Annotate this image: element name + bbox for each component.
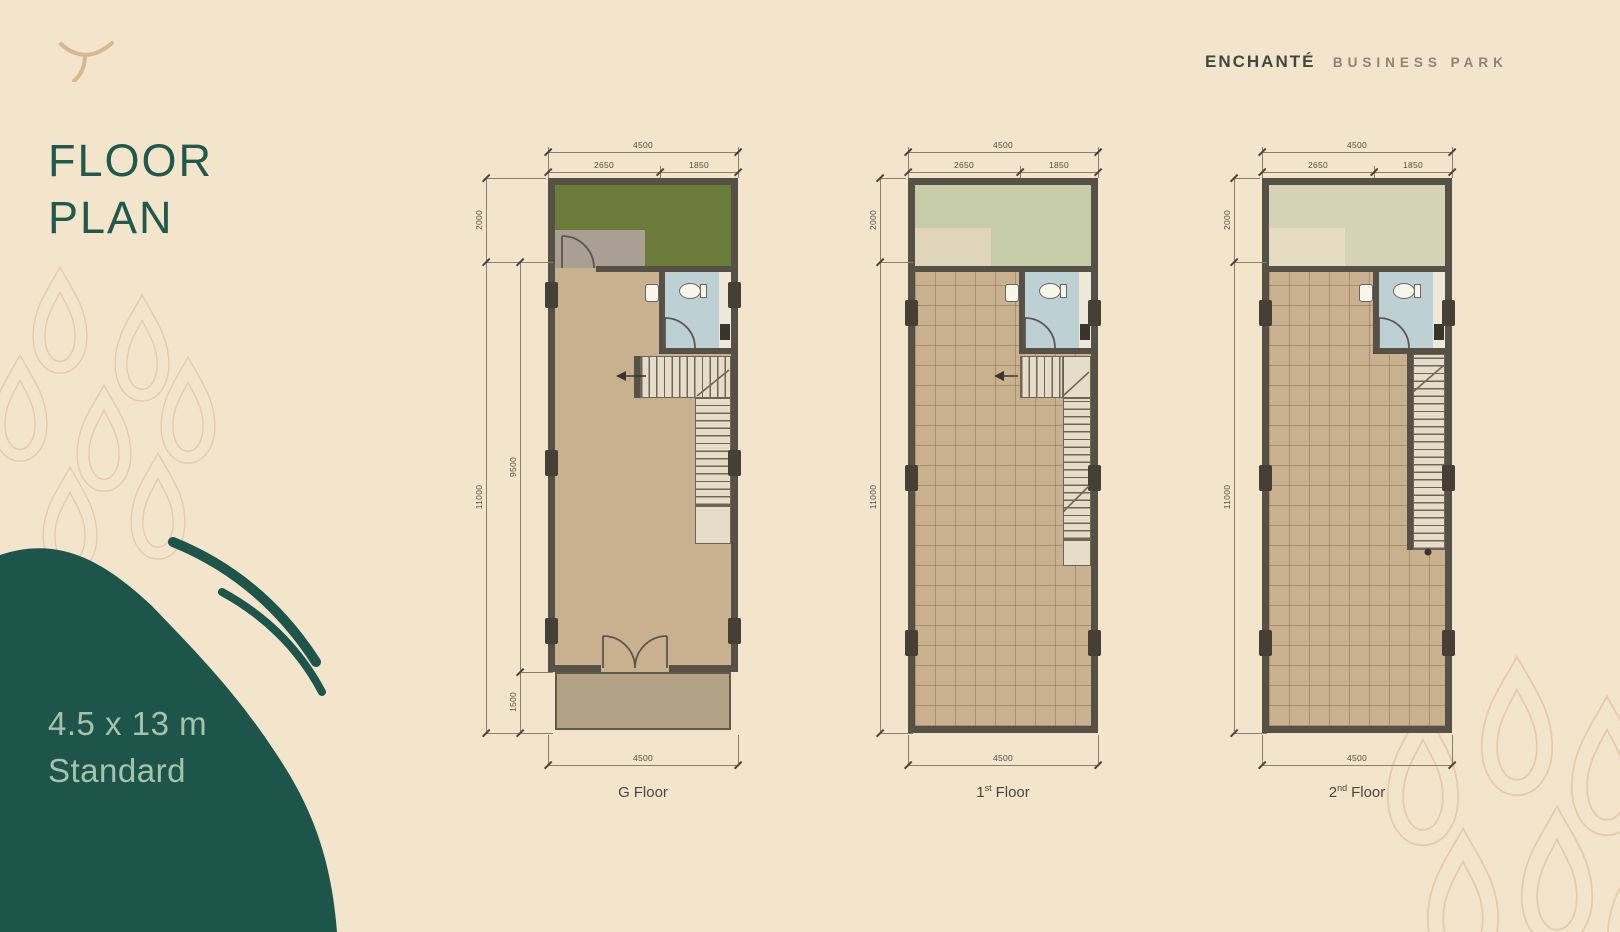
toilet-fixture	[679, 283, 701, 299]
sink-fixture	[1005, 284, 1019, 302]
dim-label: 11000	[1222, 485, 1232, 510]
dim-ext	[486, 178, 546, 179]
dim-line	[548, 172, 738, 173]
first-floor-stair-flight	[1020, 356, 1063, 398]
dim-label: 2000	[474, 210, 484, 230]
dim-label: 1850	[1049, 160, 1069, 170]
g-floor-entry-opening	[601, 663, 669, 672]
g-floor-stair-flight	[640, 356, 731, 398]
column	[905, 465, 918, 491]
plan-label-g-floor: GFloor	[583, 783, 703, 801]
bird-swoosh-icon	[58, 36, 116, 82]
dim-ext	[520, 672, 553, 673]
dim-label: 2650	[594, 160, 614, 170]
dim-ext	[1234, 178, 1260, 179]
toilet-tank	[700, 284, 707, 298]
dim-label: 4500	[993, 140, 1013, 150]
dim-label: 2650	[1308, 160, 1328, 170]
brand-suffix: BUSINESS PARK	[1333, 55, 1508, 70]
column	[1442, 465, 1455, 491]
dim-line	[908, 172, 1098, 173]
column	[1088, 300, 1101, 326]
g-floor-stair-landing	[695, 506, 731, 544]
unit-variant: Standard	[48, 747, 207, 794]
toilet-tank	[1414, 284, 1421, 298]
floor-ordinal: st	[985, 783, 992, 793]
dim-label: 4500	[1347, 140, 1367, 150]
dim-ext	[1234, 262, 1267, 263]
floor-word: Floor	[634, 784, 668, 801]
g-floor-shaft-unit	[720, 324, 730, 340]
page-title-line2: PLAN	[48, 189, 213, 246]
dim-line	[520, 262, 521, 733]
g-floor-porch	[555, 672, 731, 730]
dim-ext	[738, 735, 739, 765]
floor-ordinal: nd	[1337, 783, 1347, 793]
column	[1259, 630, 1272, 656]
dim-label: 1500	[508, 692, 518, 712]
dim-line	[548, 765, 738, 766]
first-floor-bathroom-wall	[1019, 348, 1091, 354]
dim-ext	[908, 735, 909, 765]
floor-number: 1	[976, 784, 984, 801]
brand-name: ENCHANTÉ	[1205, 52, 1315, 71]
dim-label: 11000	[474, 485, 484, 510]
dim-label: 1850	[689, 160, 709, 170]
dim-label: 4500	[633, 753, 653, 763]
page-title-line1: FLOOR	[48, 132, 213, 189]
column	[1442, 630, 1455, 656]
first-floor-stair-run	[1063, 398, 1091, 540]
dim-line	[1262, 152, 1452, 153]
leaf-teardrop-motif	[1588, 840, 1620, 932]
column	[545, 282, 558, 308]
g-floor-bathroom-wall	[659, 272, 665, 354]
dim-ext	[1098, 735, 1099, 765]
column	[728, 618, 741, 644]
column	[1088, 465, 1101, 491]
toilet-tank	[1060, 284, 1067, 298]
unit-size-badge: 4.5 x 13 m Standard	[48, 700, 207, 794]
column	[1259, 465, 1272, 491]
floor-word: Floor	[1351, 784, 1385, 801]
dim-label: 4500	[1347, 753, 1367, 763]
dim-line	[908, 765, 1098, 766]
column	[545, 450, 558, 476]
dim-ext	[880, 262, 913, 263]
second-floor-bathroom-wall	[1373, 272, 1379, 354]
dim-ext	[1262, 735, 1263, 765]
dim-label: 4500	[633, 140, 653, 150]
dim-line	[908, 152, 1098, 153]
second-floor-stair-run	[1413, 354, 1445, 550]
dim-tick	[1094, 761, 1102, 769]
sink-fixture	[1359, 284, 1373, 302]
dim-ext	[1234, 733, 1267, 734]
first-floor-shaft-unit	[1080, 324, 1090, 340]
dim-ext	[1452, 735, 1453, 765]
dim-label: 1850	[1403, 160, 1423, 170]
dim-label: 4500	[993, 753, 1013, 763]
dim-line	[548, 152, 738, 153]
column	[545, 618, 558, 644]
brand-header: ENCHANTÉ BUSINESS PARK	[1205, 52, 1508, 72]
floor-number: 2	[1329, 784, 1337, 801]
toilet-fixture	[1039, 283, 1061, 299]
column	[728, 282, 741, 308]
g-floor-bathroom-wall	[659, 348, 731, 354]
plan-label-second-floor: 2ndFloor	[1297, 783, 1417, 801]
column	[905, 300, 918, 326]
dim-label: 2000	[868, 210, 878, 230]
first-floor-stair-winder	[1063, 356, 1091, 398]
first-floor-stair-landing	[1063, 540, 1091, 566]
dim-label: 9500	[508, 457, 518, 477]
dim-tick	[734, 761, 742, 769]
dim-ext	[880, 733, 913, 734]
unit-dimensions: 4.5 x 13 m	[48, 700, 207, 747]
dim-ext	[548, 735, 549, 765]
dim-line	[1262, 765, 1452, 766]
column	[905, 630, 918, 656]
leaf-teardrop-motif	[0, 350, 62, 468]
column	[1259, 300, 1272, 326]
column	[1088, 630, 1101, 656]
dim-label: 11000	[868, 485, 878, 510]
column	[728, 450, 741, 476]
toilet-fixture	[1393, 283, 1415, 299]
column	[1442, 300, 1455, 326]
plan-label-first-floor: 1stFloor	[943, 783, 1063, 801]
dim-line	[1262, 172, 1452, 173]
sink-fixture	[645, 284, 659, 302]
page-title: FLOOR PLAN	[48, 132, 213, 246]
first-floor-bathroom-wall	[1019, 272, 1025, 354]
dim-ext	[880, 178, 906, 179]
dim-label: 2650	[954, 160, 974, 170]
g-floor-stair-run	[695, 398, 731, 506]
floor-word: Floor	[996, 784, 1030, 801]
dim-label: 2000	[1222, 210, 1232, 230]
floor-plan-slide: FLOOR PLAN ENCHANTÉ BUSINESS PARK 4500 2…	[0, 0, 1620, 932]
floor-number: G	[618, 784, 630, 801]
second-floor-shaft-unit	[1434, 324, 1444, 340]
